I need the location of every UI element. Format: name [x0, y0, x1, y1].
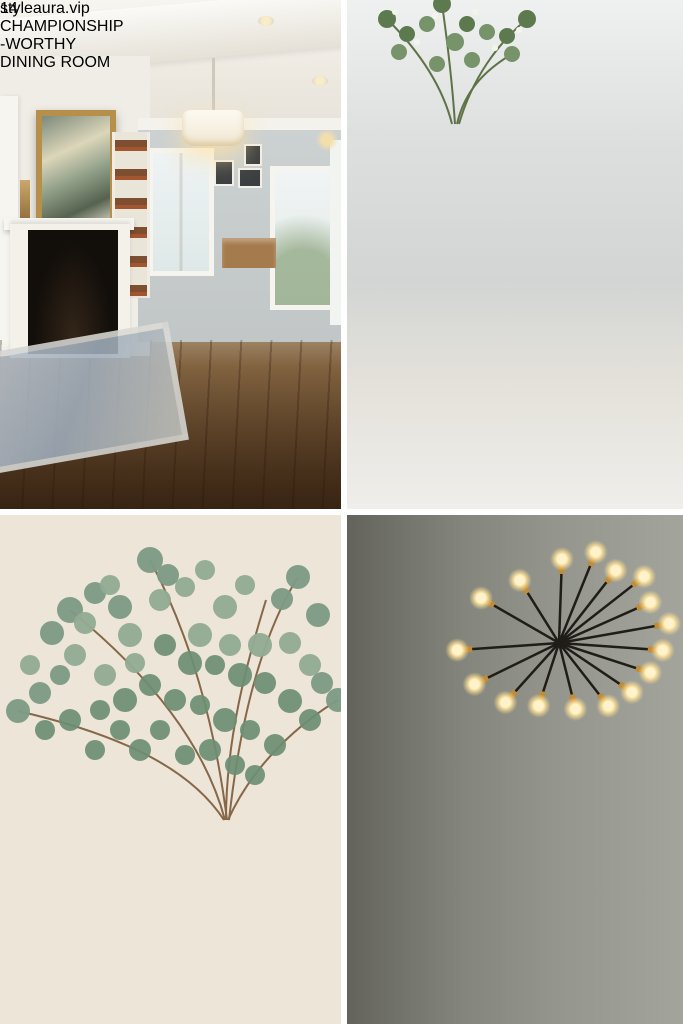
- site-url-text: styleaura.vip: [0, 0, 90, 17]
- photo-top-left-traditional-dining-room: [0, 0, 341, 509]
- photo-bottom-left-eucalyptus-still-life: [0, 515, 341, 1024]
- window: [148, 148, 214, 276]
- chandelier-glow: [316, 128, 338, 152]
- drum-pendant-light: [182, 110, 244, 146]
- candlestick: [20, 180, 30, 222]
- gold-framed-painting: [36, 110, 116, 234]
- framed-photo: [238, 168, 262, 188]
- framed-photo: [244, 144, 262, 166]
- photo-bottom-right-modern-dining-room: [347, 515, 683, 1024]
- greenery-stems: [347, 0, 567, 134]
- title-line-dining-room: DINING ROOM: [0, 54, 124, 72]
- photo-top-right-tablescape: [347, 0, 683, 509]
- recessed-light: [312, 76, 328, 86]
- recessed-light: [258, 16, 274, 26]
- title-line-championship: CHAMPIONSHIP: [0, 18, 124, 36]
- sputnik-chandelier: [347, 515, 683, 815]
- title-line-worthy: -WORTHY: [0, 36, 124, 54]
- framed-photo: [214, 160, 234, 186]
- site-url-badge: styleaura.vip: [0, 0, 90, 18]
- dining-table: [126, 268, 294, 340]
- eucalyptus-branches: [0, 515, 341, 845]
- sideboard: [222, 238, 276, 268]
- pinterest-pin-collage: 14 CHAMPIONSHIP -WORTHY DINING ROOM styl…: [0, 0, 683, 1024]
- pendant-cord: [212, 58, 215, 114]
- window-light: [330, 140, 341, 325]
